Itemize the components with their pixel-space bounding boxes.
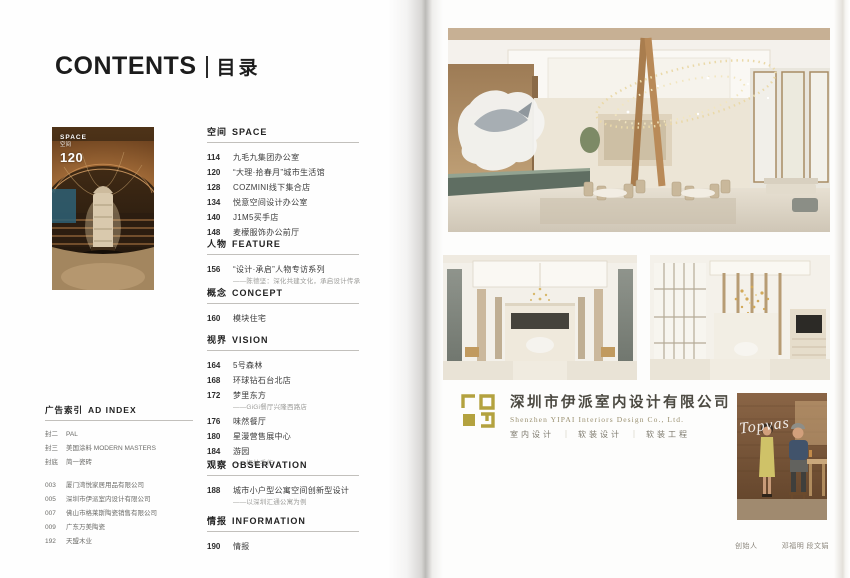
service-separator: ｜ [630,429,638,440]
ad-index-entry: 003厦门湾悦家居用品有限公司 [45,479,207,493]
founders-names: 邓福明 段文娟 [782,541,829,551]
toc-entry: 140J1M5买手店 [207,210,393,225]
toc-entry: 180星漫营售展中心 [207,429,393,444]
thumbnail-tag-zh: 空间 [60,142,87,149]
service-soft-decoration-engineering: 软装工程 [646,429,690,440]
page-title: CONTENTS 目录 [55,52,261,81]
lobby-left-art [443,255,637,380]
lobby-photo-right [650,255,830,380]
section-rule [207,254,359,255]
company-text: 深圳市伊派室内设计有限公司 Shenzhen YIPAI Interiors D… [510,391,731,440]
contents-page: CONTENTS 目录 [0,0,420,578]
magazine-spread: CONTENTS 目录 [0,0,850,578]
toc-entry: 120“大理·拾春月”城市生活馆 [207,165,393,180]
toc-section-concept: 概念CONCEPT 160模块住宅 [207,286,393,326]
company-services: 室内设计 ｜ 软装设计 ｜ 软装工程 [510,429,731,440]
lobby-right-art [650,255,830,380]
toc-section-feature: 人物FEATURE 156“设计·承启”人物专访系列 ——陈德坚：深化共建文化，… [207,237,393,288]
ad-index-entry: 009广东万美陶瓷 [45,521,207,535]
ad-index-entry: 007佛山市格莱斯陶瓷销售有限公司 [45,507,207,521]
section-rule [207,531,359,532]
section-heading: 观察OBSERVATION [207,458,393,471]
company-brand-block: 深圳市伊派室内设计有限公司 Shenzhen YIPAI Interiors D… [458,391,731,440]
service-soft-decoration-design: 软装设计 [578,429,622,440]
toc-entry: 168环球钻石台北店 [207,373,393,388]
toc-section-information: 情报INFORMATION 190情报 [207,514,393,554]
title-divider [206,56,208,78]
section-rule [207,142,359,143]
hero-lobby-photo [448,28,830,232]
founders-photo: Topvas [737,393,827,520]
yipai-ad-page: 深圳市伊派室内设计有限公司 Shenzhen YIPAI Interiors D… [420,0,850,578]
toc-entry: 188城市小户型公寓空间创新型设计 [207,483,393,498]
toc-entry: 128COZMINI线下集合店 [207,180,393,195]
section-rule [207,303,359,304]
service-separator: ｜ [562,429,570,440]
toc-entry: 114九毛九集团办公室 [207,150,393,165]
ad-index-section: 广告索引AD INDEX 封二PAL 封三美国涂料 MODERN MASTERS… [45,404,207,549]
toc-section-observation: 观察OBSERVATION 188城市小户型公寓空间创新型设计 ——以深圳汇通公… [207,458,393,509]
lobby-photo-left [443,255,637,380]
company-name-zh: 深圳市伊派室内设计有限公司 [510,391,731,412]
toc-section-vision: 视界VISION 1645号森林 168环球钻石台北店 172梦里东方 ——Gi… [207,333,393,470]
bookstore-thumbnail: SPACE 空间 120 [52,127,154,290]
hero-lobby-art [448,28,830,232]
section-heading: 人物FEATURE [207,237,393,250]
toc-entry: 160模块住宅 [207,311,393,326]
section-heading: 视界VISION [207,333,393,346]
company-name-en: Shenzhen YIPAI Interiors Design Co., Ltd… [510,415,731,424]
toc-entry: 184游园 [207,444,393,459]
toc-entry: 156“设计·承启”人物专访系列 [207,262,393,277]
yipai-logo-icon [458,391,498,431]
contents-title-en: CONTENTS [55,52,197,81]
ad-index-entry: 192天盟木业 [45,535,207,549]
toc-entry-subtitle: ——陈德坚：深化共建文化，承启设计传承 [233,277,393,286]
ad-index-entry: 封三美国涂料 MODERN MASTERS [45,442,207,456]
section-rule [207,350,359,351]
thumbnail-tag-en: SPACE [60,134,87,142]
contents-title-zh: 目录 [217,53,261,80]
ad-index-heading: 广告索引AD INDEX [45,404,207,416]
section-heading: 概念CONCEPT [207,286,393,299]
toc-entry: 134悦意空间设计办公室 [207,195,393,210]
section-heading: 情报INFORMATION [207,514,393,527]
service-interior-design: 室内设计 [510,429,554,440]
founders-caption: 创始人 邓福明 段文娟 [735,541,829,551]
ad-index-entry: 封底简一瓷砖 [45,456,207,470]
section-heading: 空间SPACE [207,125,393,138]
thumbnail-caption: SPACE 空间 120 [60,134,87,166]
toc-entry: 176味然餐厅 [207,414,393,429]
toc-entry-subtitle: ——GiGi餐厅兴隆西路店 [233,403,393,412]
toc-entry: 172梦里东方 [207,388,393,403]
section-rule [45,420,193,421]
toc-entry-subtitle: ——以深圳汇通公寓为例 [233,498,393,507]
ad-index-gap [45,470,207,479]
section-rule [207,475,359,476]
toc-entry: 190情报 [207,539,393,554]
toc-entry: 1645号森林 [207,358,393,373]
ad-index-entry: 封二PAL [45,428,207,442]
thumbnail-page-number: 120 [60,150,87,166]
founders-photo-art [737,393,827,520]
toc-section-space: 空间SPACE 114九毛九集团办公室 120“大理·拾春月”城市生活馆 128… [207,125,393,240]
ad-index-entry: 005深圳市伊派室内设计有限公司 [45,493,207,507]
founders-label: 创始人 [735,541,758,551]
